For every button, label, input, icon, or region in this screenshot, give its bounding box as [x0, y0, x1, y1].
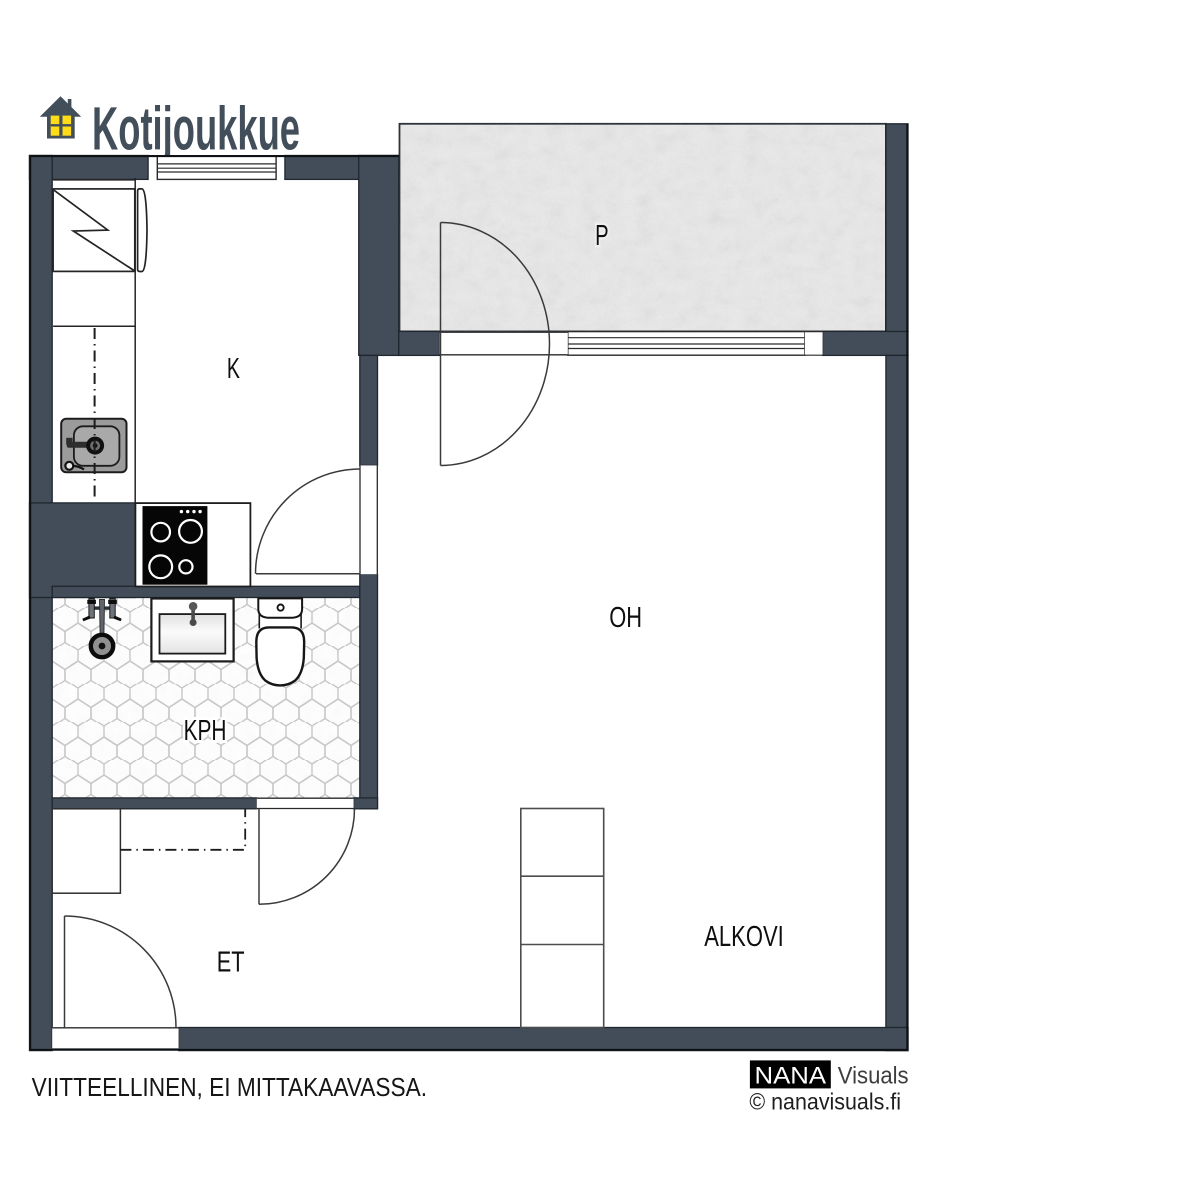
svg-text:ET: ET	[217, 947, 245, 979]
svg-text:Kotijoukkue: Kotijoukkue	[92, 95, 300, 164]
svg-text:P: P	[595, 220, 609, 252]
svg-text:ALKOVI: ALKOVI	[704, 921, 784, 953]
svg-text:OH: OH	[609, 602, 642, 634]
svg-text:© nanavisuals.fi: © nanavisuals.fi	[749, 1089, 901, 1115]
svg-text:KPH: KPH	[184, 715, 227, 747]
svg-text:Visuals: Visuals	[838, 1062, 909, 1089]
svg-text:NANA: NANA	[755, 1062, 827, 1089]
svg-text:K: K	[227, 353, 240, 385]
svg-text:VIITTEELLINEN, EI MITTAKAAVASS: VIITTEELLINEN, EI MITTAKAAVASSA.	[32, 1072, 427, 1102]
